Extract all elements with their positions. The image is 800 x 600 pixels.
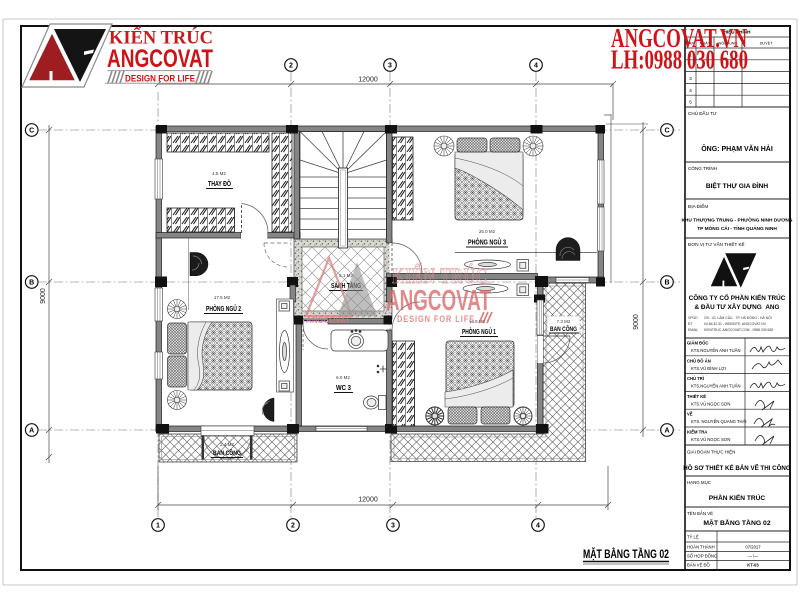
svg-text:3: 3 bbox=[391, 523, 395, 530]
svg-text:07/2017: 07/2017 bbox=[745, 544, 761, 549]
svg-text:CHỦ ĐỒ ÁN: CHỦ ĐỒ ÁN bbox=[687, 358, 711, 363]
svg-text:KTS.NGUYỄN ANH TUẤN: KTS.NGUYỄN ANH TUẤN bbox=[691, 384, 740, 389]
svg-text:A: A bbox=[29, 428, 34, 435]
svg-text:BẢN VẼ ĐỒ: BẢN VẼ ĐỒ bbox=[687, 563, 711, 568]
svg-text:THAY ĐỒ: THAY ĐỒ bbox=[208, 178, 231, 188]
svg-text:2: 2 bbox=[291, 523, 295, 530]
svg-text:5.1 M2: 5.1 M2 bbox=[339, 273, 353, 278]
svg-text:A: A bbox=[664, 428, 669, 435]
svg-text:3: 3 bbox=[388, 63, 392, 70]
svg-text:KTS.VŨ NGỌC SƠN: KTS.VŨ NGỌC SƠN bbox=[691, 401, 730, 406]
svg-text:PHÒNG NGỦ 2: PHÒNG NGỦ 2 bbox=[206, 304, 241, 313]
svg-text:12000: 12000 bbox=[358, 77, 378, 84]
svg-text:VẼ: VẼ bbox=[687, 412, 693, 417]
svg-text:BIỆT THỰ GIA ĐÌNH: BIỆT THỰ GIA ĐÌNH bbox=[706, 181, 769, 190]
svg-text:PHÒNG NGỦ 1: PHÒNG NGỦ 1 bbox=[462, 327, 496, 336]
svg-text:C: C bbox=[664, 128, 669, 135]
svg-text:KTS.VŨ ĐÌNH LỢI: KTS.VŨ ĐÌNH LỢI bbox=[691, 366, 726, 371]
svg-text:2/9 - 42, LÀM CẦU - TP. HÀ ĐÔN: 2/9 - 42, LÀM CẦU - TP. HÀ ĐÔNG - HÀ NỘI bbox=[704, 315, 772, 320]
svg-text:KTS.VŨ NGỌC SƠN: KTS.VŨ NGỌC SƠN bbox=[691, 437, 730, 442]
svg-text:EMAIL: EMAIL bbox=[688, 328, 698, 332]
svg-text:KT-03: KT-03 bbox=[747, 563, 759, 568]
svg-text:ANGCOVAT: ANGCOVAT bbox=[306, 315, 350, 325]
svg-text:MẶT BẰNG TẦNG 02: MẶT BẰNG TẦNG 02 bbox=[583, 548, 669, 561]
svg-text:GIÁM ĐỐC: GIÁM ĐỐC bbox=[687, 341, 708, 346]
svg-text:2.4 M2: 2.4 M2 bbox=[220, 442, 234, 447]
svg-text:5: 5 bbox=[689, 100, 692, 105]
svg-text:7.3 M2: 7.3 M2 bbox=[557, 319, 571, 324]
svg-text:9000: 9000 bbox=[633, 314, 640, 330]
svg-text:B: B bbox=[29, 280, 34, 287]
svg-text:C: C bbox=[29, 128, 34, 135]
svg-text:ĐT: ĐT bbox=[688, 322, 693, 326]
svg-text:B: B bbox=[664, 280, 669, 287]
svg-text:HỒ SƠ THIẾT KẾ BẢN VẼ THI CÔNG: HỒ SƠ THIẾT KẾ BẢN VẼ THI CÔNG bbox=[683, 464, 791, 472]
svg-text:CHỦ TRÌ: CHỦ TRÌ bbox=[687, 376, 704, 381]
svg-text:HOÀN THÀNH: HOÀN THÀNH bbox=[687, 544, 715, 549]
svg-text:2: 2 bbox=[289, 63, 293, 70]
svg-text:KTS.NGUYỄN ANH TUẤN: KTS.NGUYỄN ANH TUẤN bbox=[691, 348, 740, 353]
svg-text:BAN CÔNG: BAN CÔNG bbox=[550, 324, 577, 333]
svg-text:PHÒNG NGỦ 3: PHÒNG NGỦ 3 bbox=[468, 238, 506, 247]
svg-text:— /—: — /— bbox=[748, 554, 760, 559]
svg-text:17.5 M2: 17.5 M2 bbox=[214, 295, 231, 300]
svg-text:BAN CÔNG: BAN CÔNG bbox=[213, 448, 241, 457]
svg-text:CHỦ ĐẦU TƯ: CHỦ ĐẦU TƯ bbox=[688, 110, 717, 116]
svg-text:KIENTRUC-ANGCOVAT.COM - 0988 0: KIENTRUC-ANGCOVAT.COM - 0988 030 680 bbox=[704, 328, 773, 332]
svg-text:THIẾT KẾ: THIẾT KẾ bbox=[687, 394, 706, 399]
svg-text:4: 4 bbox=[689, 88, 692, 93]
svg-text:ÔNG: PHẠM VĂN HẢI: ÔNG: PHẠM VĂN HẢI bbox=[701, 144, 773, 153]
svg-text:CÔNG TRÌNH: CÔNG TRÌNH bbox=[688, 165, 717, 171]
svg-text:ĐỊA ĐIỂM: ĐỊA ĐIỂM bbox=[688, 203, 708, 209]
svg-text:LH:0988 030 680: LH:0988 030 680 bbox=[611, 45, 748, 75]
svg-text:TÊN BẢN VẼ: TÊN BẢN VẼ bbox=[687, 511, 713, 516]
svg-text:DUYỆT: DUYỆT bbox=[760, 41, 774, 46]
svg-text:DESIGN FOR LIFE: DESIGN FOR LIFE bbox=[125, 74, 195, 85]
svg-text:4: 4 bbox=[534, 63, 538, 70]
svg-text:HẠNG MỤC: HẠNG MỤC bbox=[687, 480, 711, 485]
svg-text:25.0 M2: 25.0 M2 bbox=[479, 229, 496, 234]
svg-text:KTS. NGUYỄN QUANG THÁI: KTS. NGUYỄN QUANG THÁI bbox=[691, 419, 747, 424]
svg-text:WC 3: WC 3 bbox=[336, 383, 351, 392]
svg-text:VPGD: VPGD bbox=[688, 316, 698, 320]
svg-text:4.5 M2: 4.5 M2 bbox=[212, 171, 226, 176]
svg-text:9000: 9000 bbox=[40, 288, 47, 304]
svg-text:GIAI ĐOẠN THỰC HIỆN: GIAI ĐOẠN THỰC HIỆN bbox=[687, 450, 735, 455]
svg-text:TỶ LỆ: TỶ LỆ bbox=[687, 535, 699, 540]
svg-text:SỐ HỢP ĐỒNG: SỐ HỢP ĐỒNG bbox=[687, 554, 717, 559]
svg-text:04.66.32.31 - WEBSITE: ANGCOVA: 04.66.32.31 - WEBSITE: ANGCOVAT.VN bbox=[704, 322, 766, 326]
svg-text:ANGCOVAT: ANGCOVAT bbox=[107, 45, 213, 73]
svg-text:3: 3 bbox=[689, 76, 692, 81]
svg-text:ANGCOVAT: ANGCOVAT bbox=[386, 285, 491, 317]
svg-text:4: 4 bbox=[536, 523, 540, 530]
svg-text:12000: 12000 bbox=[358, 497, 378, 504]
svg-text:6.0 M2: 6.0 M2 bbox=[336, 375, 350, 380]
svg-text:ĐƠN VỊ TƯ VẤN THIẾT KẾ: ĐƠN VỊ TƯ VẤN THIẾT KẾ bbox=[688, 241, 745, 247]
svg-text:1: 1 bbox=[156, 523, 160, 530]
svg-text:DESIGN FOR LIFE: DESIGN FOR LIFE bbox=[397, 314, 475, 325]
svg-text:KIỂM TRA: KIỂM TRA bbox=[687, 430, 707, 435]
